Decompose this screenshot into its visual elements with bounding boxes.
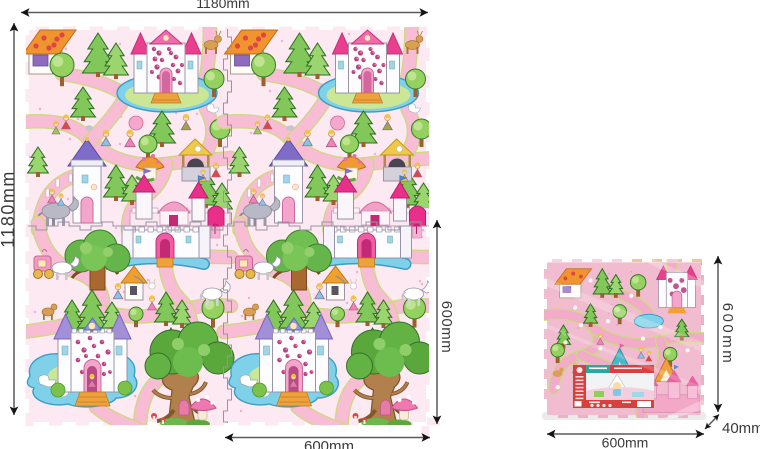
svg-text:600mm: 600mm: [602, 435, 649, 449]
svg-text:600mm: 600mm: [719, 303, 736, 366]
svg-text:40mm: 40mm: [722, 420, 760, 437]
svg-text:600mm: 600mm: [438, 301, 455, 354]
svg-text:600mm: 600mm: [304, 438, 354, 449]
svg-text:1180mm: 1180mm: [0, 170, 18, 248]
svg-text:1180mm: 1180mm: [196, 0, 249, 11]
